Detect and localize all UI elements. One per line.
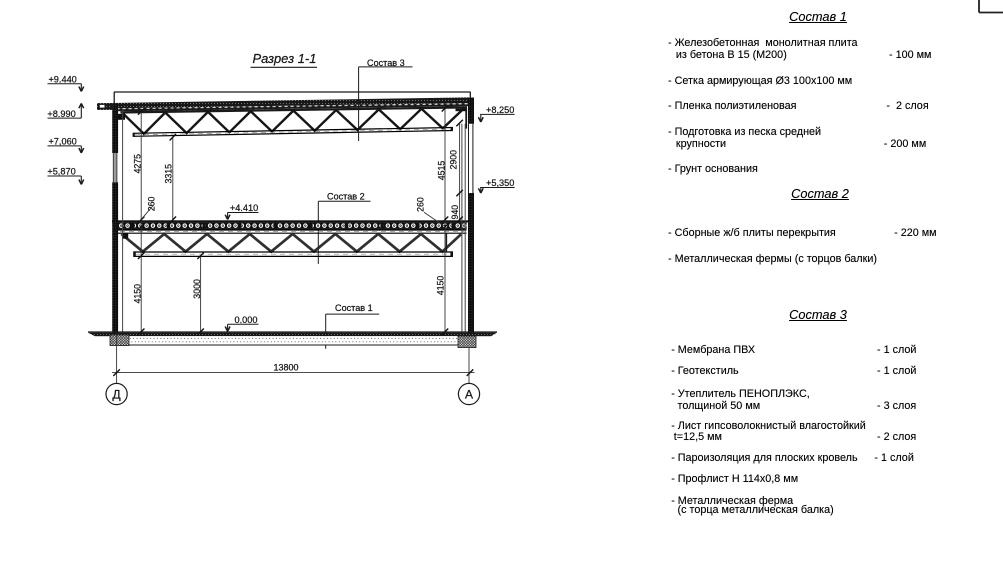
svg-text:А: А — [465, 388, 474, 402]
svg-text:4515: 4515 — [437, 161, 447, 181]
svg-text:+5,870: +5,870 — [47, 167, 75, 177]
svg-text:+8.990: +8.990 — [47, 109, 75, 119]
svg-text:2900: 2900 — [449, 150, 459, 170]
svg-text:260: 260 — [415, 197, 425, 212]
svg-text:0.000: 0.000 — [235, 315, 258, 325]
svg-text:4150: 4150 — [436, 276, 446, 296]
svg-text:4150: 4150 — [132, 284, 142, 304]
svg-text:+7,060: +7,060 — [48, 137, 76, 147]
svg-text:13800: 13800 — [273, 363, 298, 373]
svg-text:Разрез 1-1: Разрез 1-1 — [253, 51, 317, 66]
svg-text:3315: 3315 — [164, 164, 174, 184]
svg-text:Состав 2: Состав 2 — [327, 192, 365, 202]
svg-text:+8,250: +8,250 — [486, 105, 514, 115]
svg-text:4275: 4275 — [132, 154, 142, 174]
svg-text:Д: Д — [112, 388, 121, 402]
svg-text:3000: 3000 — [192, 279, 202, 299]
svg-text:+9.440: +9.440 — [48, 74, 76, 84]
svg-text:+4.410: +4.410 — [230, 203, 258, 213]
svg-text:+5,350: +5,350 — [486, 178, 514, 188]
svg-text:260: 260 — [147, 197, 157, 212]
svg-text:Состав 1: Состав 1 — [335, 303, 373, 313]
svg-text:940: 940 — [450, 205, 460, 220]
